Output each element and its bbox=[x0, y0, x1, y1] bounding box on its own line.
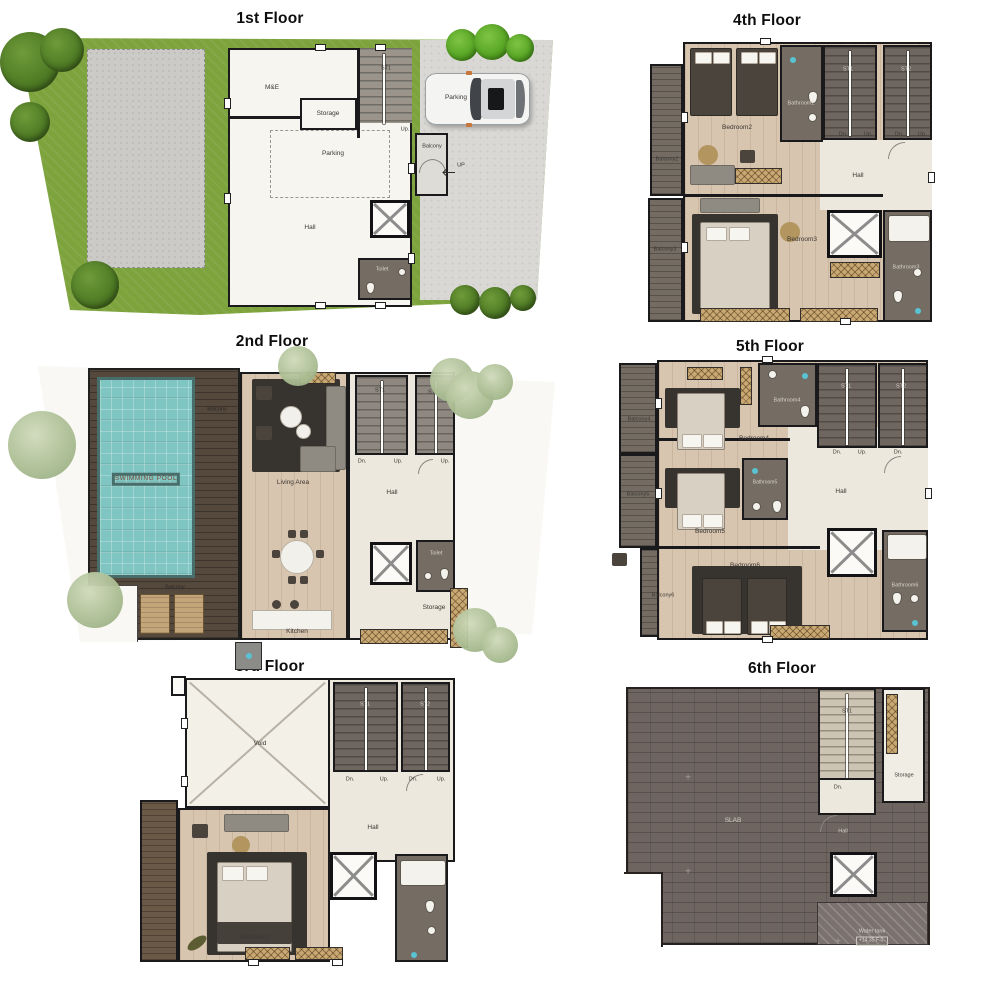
shower-dot bbox=[752, 468, 758, 474]
room-label-hall: Hall bbox=[304, 225, 315, 232]
bathroom5-label: Bathroom5 bbox=[753, 481, 777, 486]
grid-mark bbox=[681, 242, 688, 253]
grid-mark bbox=[224, 98, 231, 109]
grid-mark bbox=[315, 44, 326, 51]
label-up-arrow: UP bbox=[457, 163, 465, 169]
balcony2-label: Balcony2 bbox=[656, 157, 679, 163]
car-parking-label: Parking bbox=[445, 95, 467, 102]
dn-label: Dn. bbox=[346, 777, 355, 783]
bathroom6-label: Bathroom6 bbox=[892, 583, 919, 589]
toilet-icon bbox=[366, 282, 375, 294]
sofa bbox=[700, 198, 760, 213]
room-label-balcony: Balcony bbox=[422, 144, 442, 150]
sink-icon bbox=[398, 268, 406, 276]
lower-balcony-label: Balcony bbox=[165, 585, 185, 591]
storage-room bbox=[882, 688, 925, 803]
slab-label: SLAB bbox=[725, 818, 742, 825]
sink-icon bbox=[427, 926, 436, 935]
hall-label: Hall bbox=[838, 829, 847, 835]
st1-label: ST1 bbox=[843, 67, 853, 73]
bed bbox=[736, 48, 778, 116]
grid-mark bbox=[762, 636, 773, 643]
elevator-icon bbox=[827, 210, 882, 258]
armchair bbox=[740, 150, 755, 163]
up-arrow-icon bbox=[439, 168, 456, 177]
bedroom2-label: Bedroom2 bbox=[722, 125, 752, 132]
tree-icon bbox=[482, 627, 518, 663]
wardrobe-hatch bbox=[800, 308, 878, 322]
bed bbox=[677, 393, 725, 450]
balcony4-strip bbox=[619, 363, 657, 454]
st1-label: ST1 bbox=[360, 702, 370, 708]
up-label: Up. bbox=[380, 777, 389, 783]
tree-icon bbox=[8, 411, 76, 479]
wall-nib bbox=[171, 676, 186, 696]
sofa bbox=[690, 165, 735, 185]
hall-label: Hall bbox=[835, 489, 846, 496]
up-label: Up. bbox=[394, 459, 403, 465]
floor-plan-3rd: 3rd Floor Void ST1 ST2 Dn. Up. Dn. Up. H… bbox=[110, 658, 455, 973]
grid-mark bbox=[762, 356, 773, 363]
car-mirror bbox=[466, 71, 472, 75]
service-box bbox=[235, 642, 262, 670]
sink-icon bbox=[808, 113, 817, 122]
bedroom1-label: Bedroom1 bbox=[240, 935, 270, 942]
armchair bbox=[192, 824, 208, 838]
stool bbox=[290, 600, 299, 609]
floor-title-5th: 5th Floor bbox=[612, 338, 928, 356]
bench-hatch bbox=[830, 262, 880, 278]
grid-mark bbox=[928, 172, 935, 183]
grid-mark bbox=[655, 488, 662, 499]
tree-icon bbox=[450, 285, 480, 315]
hall-label: Hall bbox=[386, 490, 397, 497]
lounger-icon bbox=[174, 594, 204, 634]
toilet-room bbox=[358, 258, 412, 300]
toilet-icon bbox=[772, 500, 782, 513]
bathroom2-label: Bathroom2 bbox=[788, 101, 815, 107]
grid-mark bbox=[181, 718, 188, 729]
wardrobe-hatch bbox=[740, 367, 752, 405]
grid-cross: + bbox=[685, 867, 691, 878]
shelf-hatch bbox=[360, 629, 448, 644]
tree-icon bbox=[477, 364, 513, 400]
hall-label: Hall bbox=[852, 173, 863, 180]
up-label: Up. bbox=[437, 777, 446, 783]
shower-dot bbox=[790, 57, 796, 63]
sink-icon bbox=[910, 594, 919, 603]
living-area-label: Living Area bbox=[277, 480, 309, 487]
tree-icon bbox=[510, 285, 536, 311]
stair-rail bbox=[846, 694, 848, 778]
floor-plans-sheet: 1st Floor M&E Storage ST1 Up. Parking Ha… bbox=[0, 0, 1000, 1000]
grid-mark bbox=[681, 112, 688, 123]
floor-plan-4th: 4th Floor Balcony2 Balcony3 Bedroom2 Bat… bbox=[640, 12, 940, 330]
level-marker: +14.35 F-0- bbox=[856, 937, 888, 946]
toilet-room bbox=[416, 540, 455, 592]
stair-label-st1: ST1 bbox=[381, 66, 391, 72]
void-label: Void bbox=[254, 741, 267, 748]
stair-label-up: Up. bbox=[401, 127, 410, 133]
bed bbox=[677, 473, 725, 530]
floor-plan-2nd: 2nd Floor SWIMMING POOL Balcony Balcony … bbox=[30, 333, 560, 678]
stool bbox=[272, 600, 281, 609]
elevator-icon bbox=[370, 200, 410, 238]
carport-parking-zone bbox=[270, 130, 390, 198]
storage-label: Storage bbox=[423, 605, 446, 612]
sofa bbox=[224, 814, 289, 832]
tree-icon bbox=[446, 29, 478, 61]
elevator-icon bbox=[330, 852, 377, 900]
bathroom-room bbox=[395, 854, 448, 962]
tree-icon bbox=[40, 28, 84, 72]
floor-title-4th: 4th Floor bbox=[640, 12, 894, 30]
tree-icon bbox=[10, 102, 50, 142]
sofa bbox=[300, 446, 336, 472]
floor-plan-1st: 1st Floor M&E Storage ST1 Up. Parking Ha… bbox=[15, 8, 560, 328]
floor-title-1st: 1st Floor bbox=[15, 10, 525, 28]
stair-rail bbox=[902, 369, 904, 445]
floor-title-3rd: 3rd Floor bbox=[110, 658, 430, 676]
shelf-hatch bbox=[886, 694, 898, 754]
grid-cross: + bbox=[835, 937, 841, 948]
sink-icon bbox=[424, 572, 432, 580]
wardrobe-hatch bbox=[770, 625, 830, 639]
stair-rail bbox=[846, 369, 848, 445]
coffee-table bbox=[296, 424, 311, 439]
room-label-me: M&E bbox=[265, 85, 279, 92]
plant-icon bbox=[185, 933, 209, 954]
lounger-icon bbox=[140, 594, 170, 634]
balcony5-strip bbox=[619, 454, 657, 548]
floor-title-6th: 6th Floor bbox=[622, 660, 942, 678]
tree-icon bbox=[67, 572, 123, 628]
st1-label: ST1 bbox=[375, 388, 385, 394]
grid-mark bbox=[840, 318, 851, 325]
grid-cross: + bbox=[685, 773, 691, 784]
grid-mark bbox=[655, 398, 662, 409]
car-mirror bbox=[466, 123, 472, 127]
grid-mark bbox=[248, 959, 259, 966]
tree-icon bbox=[479, 287, 511, 319]
toilet-icon bbox=[440, 568, 449, 580]
kitchen-label: Kitchen bbox=[286, 629, 308, 636]
car-icon bbox=[425, 73, 530, 125]
sink-icon bbox=[768, 370, 777, 379]
sink-icon bbox=[752, 502, 761, 511]
car-sunroof bbox=[488, 88, 504, 110]
grid-mark bbox=[375, 44, 386, 51]
grid-mark bbox=[408, 253, 415, 264]
bathtub-icon bbox=[400, 860, 446, 886]
dining-table bbox=[280, 540, 314, 574]
wardrobe-hatch bbox=[687, 367, 723, 380]
dn-label: Dn. bbox=[895, 132, 904, 138]
st2-label: ST2 bbox=[901, 67, 911, 73]
stair-rail bbox=[907, 51, 909, 136]
wardrobe-hatch bbox=[700, 308, 790, 322]
shower-dot bbox=[915, 308, 921, 314]
elevator-icon bbox=[827, 528, 877, 577]
wall-divider bbox=[657, 546, 820, 549]
hall-label: Hall bbox=[367, 825, 378, 832]
balcony-strip bbox=[140, 800, 178, 962]
grid-mark bbox=[375, 302, 386, 309]
st1-label: ST1 bbox=[841, 384, 851, 390]
grid-mark bbox=[925, 488, 932, 499]
balcony4-label: Balcony4 bbox=[628, 417, 651, 423]
gravel-yard bbox=[87, 49, 205, 268]
bathtub-icon bbox=[887, 534, 927, 560]
round-rug bbox=[698, 145, 718, 165]
balcony5-label: Balcony5 bbox=[627, 492, 650, 498]
balcony2-strip bbox=[650, 64, 683, 196]
bathtub-icon bbox=[888, 215, 930, 242]
grid-mark bbox=[181, 776, 188, 787]
tree-icon bbox=[71, 261, 119, 309]
up-label: Up. bbox=[858, 450, 867, 456]
tree-icon bbox=[506, 34, 534, 62]
grid-mark bbox=[315, 302, 326, 309]
bedroom4-label: Bedroom4 bbox=[739, 436, 769, 443]
toilet-icon bbox=[892, 592, 902, 605]
bathroom4-label: Bathroom4 bbox=[774, 398, 801, 404]
room-label-parking: Parking bbox=[322, 151, 344, 158]
st2-label: ST2 bbox=[420, 702, 430, 708]
car-rear-window bbox=[516, 80, 525, 118]
bed bbox=[700, 222, 770, 310]
bed bbox=[690, 48, 732, 116]
toilet-icon bbox=[893, 290, 903, 303]
wall-divider bbox=[683, 194, 883, 197]
wardrobe-hatch bbox=[735, 168, 782, 184]
dn-label: Dn. bbox=[409, 777, 418, 783]
dn-label: Dn. bbox=[839, 132, 848, 138]
floor-plan-5th: 5th Floor Balcony4 Balcony5 Balcony6 Bed… bbox=[612, 338, 937, 648]
dn-label: Dn. bbox=[894, 450, 903, 456]
toilet-label: Toilet bbox=[430, 551, 443, 557]
dn-label: Dn. bbox=[834, 785, 843, 791]
room-label-toilet: Toilet bbox=[376, 267, 389, 273]
floor-plan-6th: 6th Floor SLAB + + + ST1 Dn. Storage Hal… bbox=[622, 660, 992, 960]
door-arc bbox=[419, 159, 433, 173]
stair-rail bbox=[849, 51, 851, 136]
dn-label: Dn. bbox=[358, 459, 367, 465]
bathroom6-room bbox=[882, 530, 928, 632]
bedroom6-label: Bedroom6 bbox=[730, 563, 760, 570]
hall-area bbox=[820, 140, 932, 210]
tree-icon bbox=[278, 346, 318, 386]
elevator-icon bbox=[370, 542, 412, 585]
water-tank-label: Water tank bbox=[859, 929, 885, 935]
st2-label: ST2 bbox=[896, 384, 906, 390]
grid-mark bbox=[408, 163, 415, 174]
up-label: Up. bbox=[864, 132, 873, 138]
grid-mark bbox=[760, 38, 771, 45]
up-label: Up. bbox=[441, 459, 450, 465]
balcony6-label: Balcony6 bbox=[652, 593, 675, 599]
grid-mark bbox=[332, 959, 343, 966]
tree-icon bbox=[474, 24, 510, 60]
st1-label: ST1 bbox=[842, 709, 852, 715]
slab-notch bbox=[624, 872, 663, 947]
toilet-icon bbox=[425, 900, 435, 913]
dn-label: Dn. bbox=[833, 450, 842, 456]
bathroom5-room bbox=[742, 458, 788, 520]
armchair bbox=[612, 553, 627, 566]
bedroom5-label: Bedroom5 bbox=[695, 529, 725, 536]
balcony3-label: Balcony3 bbox=[654, 247, 677, 253]
armchair bbox=[256, 386, 272, 400]
up-label: Up. bbox=[918, 132, 927, 138]
floor-title-2nd: 2nd Floor bbox=[30, 333, 514, 351]
grid-mark bbox=[224, 193, 231, 204]
living-block bbox=[240, 372, 348, 640]
bathroom3-label: Bathroom3 bbox=[893, 265, 920, 271]
bedroom3-label: Bedroom3 bbox=[787, 237, 817, 244]
shower-dot bbox=[802, 373, 808, 379]
shower-dot bbox=[912, 620, 918, 626]
balcony3-strip bbox=[648, 198, 683, 322]
storage-label: Storage bbox=[894, 773, 913, 779]
room-label-storage: Storage bbox=[317, 111, 340, 118]
toilet-icon bbox=[800, 405, 810, 418]
bed bbox=[702, 578, 742, 635]
wall-stair-left bbox=[357, 48, 360, 138]
armchair bbox=[256, 426, 272, 440]
elevator-icon bbox=[830, 852, 877, 897]
deck-balcony-label: Balcony bbox=[207, 407, 227, 413]
bathroom4-room bbox=[758, 363, 817, 427]
drain-dot bbox=[411, 952, 417, 958]
stair-landing bbox=[818, 778, 876, 815]
bathroom2-room bbox=[780, 45, 823, 142]
pool-label: SWIMMING POOL bbox=[112, 473, 180, 486]
